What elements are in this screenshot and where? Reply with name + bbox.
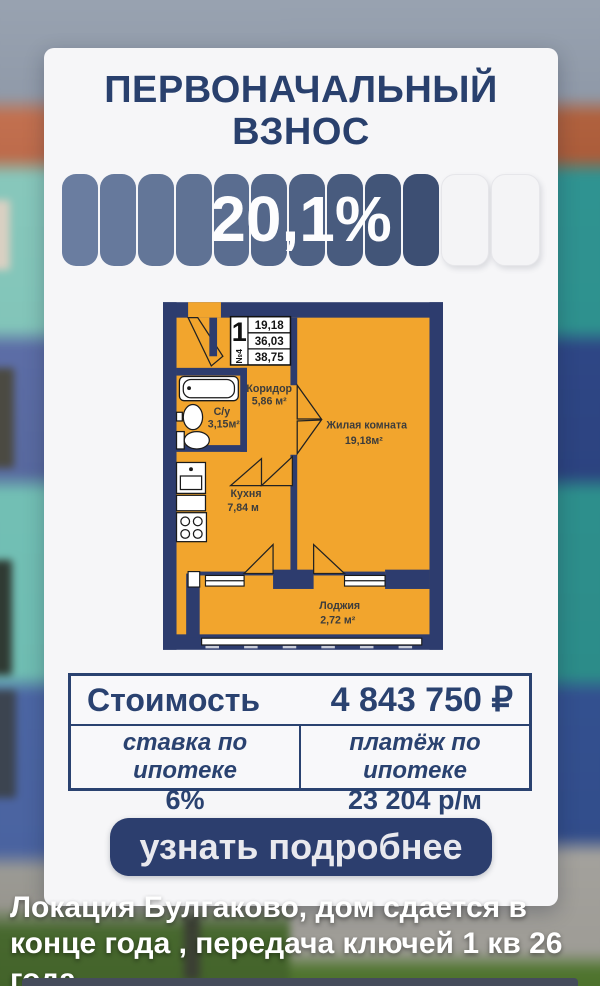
toilet-icon bbox=[184, 432, 209, 449]
floor-plan: 1 №4 19,18 36,03 38,75 bbox=[163, 302, 443, 650]
page-title: ПЕРВОНАЧАЛЬНЫЙ ВЗНОС bbox=[44, 70, 558, 154]
small-window-icon bbox=[188, 572, 200, 587]
corridor-label: Коридор bbox=[246, 383, 292, 395]
loggia-label: Лоджия bbox=[319, 600, 360, 612]
payment-cell: платёж по ипотеке 23 204 р/м bbox=[299, 726, 529, 788]
down-payment-progress: 20,1% bbox=[62, 174, 540, 266]
plan-info-table: 1 №4 19,18 36,03 38,75 bbox=[231, 317, 291, 365]
bathroom-label: С/у bbox=[214, 406, 231, 418]
cost-value: 4 843 750 ₽ bbox=[331, 680, 513, 720]
cost-label: Стоимость bbox=[87, 682, 260, 719]
down-payment-value: 20,1% bbox=[62, 174, 540, 266]
rate-cell: ставка по ипотеке 6% bbox=[71, 726, 299, 788]
loggia-glazing-icon bbox=[202, 638, 422, 645]
title-line-1: ПЕРВОНАЧАЛЬНЫЙ bbox=[44, 70, 558, 112]
location-caption: Локация Булгаково, дом сдается в конце г… bbox=[10, 890, 594, 986]
rooms-count: 1 bbox=[232, 317, 247, 347]
living-room-area: 19,18м² bbox=[345, 435, 383, 447]
living-room-label: Жилая комната bbox=[325, 420, 407, 432]
sink-icon bbox=[183, 405, 202, 430]
learn-more-button[interactable]: узнать подробнее bbox=[110, 818, 492, 876]
kitchen-counter-icon bbox=[177, 495, 206, 510]
promo-card: ПЕРВОНАЧАЛЬНЫЙ ВЗНОС 20,1% bbox=[44, 48, 558, 906]
corridor-area: 5,86 м² bbox=[252, 396, 287, 408]
floor-plan-drawing: 1 №4 19,18 36,03 38,75 bbox=[163, 302, 443, 650]
sink-tap-icon bbox=[177, 412, 183, 421]
bottom-bar bbox=[22, 978, 578, 986]
total-area-value: 38,75 bbox=[255, 352, 285, 364]
building-window bbox=[0, 200, 10, 270]
kitchen-label: Кухня bbox=[231, 488, 262, 500]
payment-value: 23 204 р/м bbox=[301, 784, 529, 816]
mortgage-row: ставка по ипотеке 6% платёж по ипотеке 2… bbox=[71, 726, 529, 788]
area-no-loggia-value: 36,03 bbox=[255, 336, 285, 348]
cost-row: Стоимость 4 843 750 ₽ bbox=[71, 676, 529, 726]
building-window bbox=[0, 690, 16, 798]
price-table: Стоимость 4 843 750 ₽ ставка по ипотеке … bbox=[68, 673, 532, 791]
story-screen: ПЕРВОНАЧАЛЬНЫЙ ВЗНОС 20,1% bbox=[0, 0, 600, 986]
rate-label: ставка по ипотеке bbox=[71, 729, 299, 784]
unit-number: №4 bbox=[234, 349, 244, 364]
entrance-opening bbox=[188, 302, 221, 317]
toilet-tank-icon bbox=[177, 432, 185, 449]
kitchen-area: 7,84 м bbox=[227, 502, 259, 514]
payment-label: платёж по ипотеке bbox=[301, 729, 529, 784]
stove-icon bbox=[177, 513, 207, 542]
kitchen-fixtures bbox=[177, 462, 207, 541]
building-window bbox=[0, 560, 12, 675]
living-area-value: 19,18 bbox=[255, 320, 285, 332]
building-window bbox=[0, 368, 14, 468]
loggia-area: 2,72 м² bbox=[320, 615, 355, 627]
rate-value: 6% bbox=[71, 784, 299, 816]
title-line-2: ВЗНОС bbox=[44, 112, 558, 154]
bathroom-area: 3,15м² bbox=[208, 419, 240, 431]
